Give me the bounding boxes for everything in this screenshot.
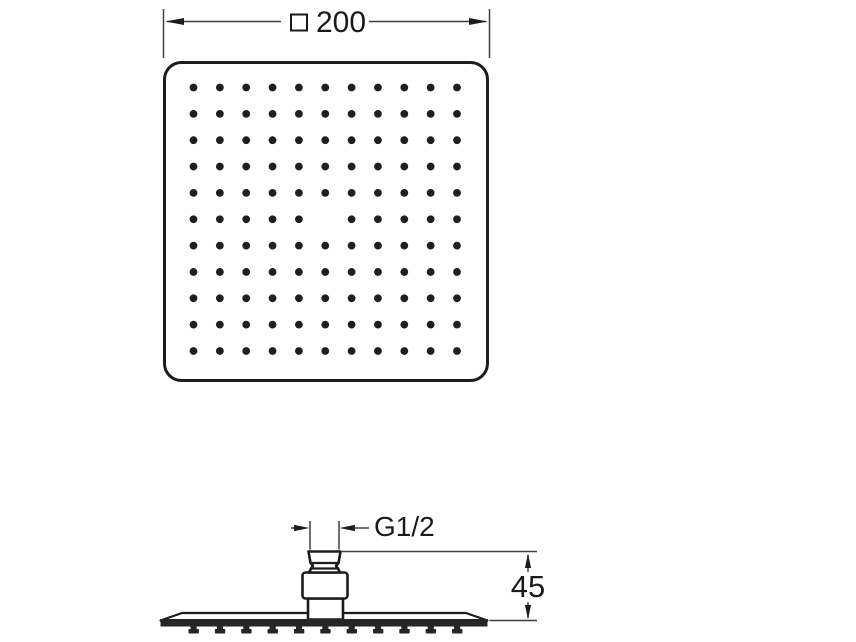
spray-hole — [321, 110, 329, 118]
spray-hole — [295, 110, 303, 118]
spray-hole — [348, 163, 356, 171]
spray-hole — [374, 110, 382, 118]
spray-hole — [321, 347, 329, 355]
spray-hole — [348, 321, 356, 329]
nozzle — [399, 626, 409, 634]
spray-hole — [400, 347, 408, 355]
spray-hole — [216, 347, 224, 355]
spray-hole — [348, 242, 356, 250]
spray-hole — [453, 321, 461, 329]
spray-hole — [321, 321, 329, 329]
technical-drawing: 200 G1/2 45 — [0, 0, 856, 642]
spray-hole — [400, 215, 408, 223]
spray-hole — [400, 163, 408, 171]
spray-hole — [374, 321, 382, 329]
spray-hole — [269, 84, 277, 92]
nozzle — [215, 626, 225, 634]
spray-hole — [348, 84, 356, 92]
spray-hole — [216, 268, 224, 276]
spray-hole — [427, 110, 435, 118]
spray-hole — [374, 84, 382, 92]
spray-hole — [242, 215, 250, 223]
spray-hole — [348, 215, 356, 223]
spray-hole — [427, 163, 435, 171]
spray-hole — [453, 215, 461, 223]
arrow-up-icon — [525, 554, 531, 569]
spray-hole — [190, 84, 198, 92]
spray-hole — [400, 84, 408, 92]
nozzle — [426, 626, 436, 634]
nozzle — [268, 626, 278, 634]
arrow-left-pointing-icon — [340, 525, 356, 531]
width-dimension: 200 — [164, 6, 490, 58]
spray-hole — [190, 294, 198, 302]
spray-hole — [348, 110, 356, 118]
spray-hole — [321, 163, 329, 171]
spray-hole — [374, 242, 382, 250]
spray-hole — [374, 189, 382, 197]
spray-hole — [295, 268, 303, 276]
spray-hole — [453, 294, 461, 302]
nozzle — [189, 626, 199, 634]
nozzle — [347, 626, 357, 634]
spray-hole — [348, 347, 356, 355]
spray-hole — [453, 347, 461, 355]
nozzle — [320, 626, 330, 634]
spray-hole — [374, 347, 382, 355]
spray-hole — [216, 163, 224, 171]
spray-hole — [374, 215, 382, 223]
spray-hole — [269, 242, 277, 250]
spray-hole — [427, 321, 435, 329]
spray-hole — [321, 136, 329, 144]
spray-hole — [374, 163, 382, 171]
spray-hole — [190, 136, 198, 144]
spray-hole — [321, 189, 329, 197]
arrow-down-icon — [525, 605, 531, 619]
spray-hole — [216, 189, 224, 197]
spray-hole — [295, 136, 303, 144]
spray-hole — [427, 136, 435, 144]
spray-hole — [295, 84, 303, 92]
spray-hole — [190, 347, 198, 355]
arrow-left-icon — [166, 18, 185, 25]
spray-hole — [190, 268, 198, 276]
spray-hole — [269, 347, 277, 355]
spray-hole — [400, 136, 408, 144]
spray-hole — [269, 136, 277, 144]
spray-hole — [242, 110, 250, 118]
thread-dimension: G1/2 — [291, 511, 435, 550]
connector-stem — [308, 599, 343, 620]
spray-hole — [242, 321, 250, 329]
spray-hole — [348, 136, 356, 144]
spray-hole — [348, 294, 356, 302]
spray-hole — [453, 136, 461, 144]
spray-hole — [269, 294, 277, 302]
nozzle — [294, 626, 304, 634]
spray-hole — [427, 84, 435, 92]
spray-hole — [453, 110, 461, 118]
spray-hole — [269, 268, 277, 276]
spray-hole — [427, 347, 435, 355]
spray-hole — [400, 294, 408, 302]
spray-hole — [295, 189, 303, 197]
spray-hole — [242, 347, 250, 355]
spray-hole — [348, 268, 356, 276]
spray-hole — [295, 163, 303, 171]
spray-hole — [427, 294, 435, 302]
spray-hole — [269, 163, 277, 171]
spray-hole — [269, 215, 277, 223]
spray-hole — [216, 110, 224, 118]
spray-hole — [216, 294, 224, 302]
spray-hole — [321, 294, 329, 302]
spray-hole — [242, 189, 250, 197]
spray-hole — [427, 268, 435, 276]
spray-hole — [295, 242, 303, 250]
spray-hole — [400, 110, 408, 118]
spray-hole — [374, 136, 382, 144]
spray-hole — [190, 110, 198, 118]
spray-hole — [190, 321, 198, 329]
spray-hole — [321, 242, 329, 250]
arrow-right-pointing-icon — [294, 525, 310, 531]
spray-hole — [374, 294, 382, 302]
connector-body — [303, 573, 348, 599]
nozzle-row — [189, 626, 463, 634]
spray-hole — [242, 136, 250, 144]
spray-hole — [348, 189, 356, 197]
height-dimension: 45 — [341, 552, 545, 621]
spray-hole — [190, 189, 198, 197]
nozzle — [241, 626, 251, 634]
spray-hole — [321, 268, 329, 276]
spray-hole — [242, 84, 250, 92]
spray-hole — [453, 163, 461, 171]
spray-hole — [216, 136, 224, 144]
spray-hole — [427, 242, 435, 250]
spray-hole — [242, 294, 250, 302]
spray-hole — [295, 347, 303, 355]
spray-hole — [190, 242, 198, 250]
thread-dimension-label: G1/2 — [374, 511, 435, 542]
spray-hole — [269, 321, 277, 329]
shower-plate-band — [161, 619, 488, 627]
spray-hole — [453, 242, 461, 250]
height-dimension-value: 45 — [511, 569, 545, 604]
face-view — [165, 63, 488, 381]
width-dimension-value: 200 — [316, 6, 366, 39]
square-symbol-icon — [291, 15, 307, 31]
spray-hole — [190, 215, 198, 223]
spray-hole — [269, 189, 277, 197]
spray-hole — [242, 163, 250, 171]
spray-hole — [453, 84, 461, 92]
spray-hole — [190, 163, 198, 171]
spray-hole — [269, 110, 277, 118]
spray-hole — [453, 268, 461, 276]
spray-hole — [427, 215, 435, 223]
spray-hole — [242, 242, 250, 250]
arrow-right-icon — [469, 18, 488, 25]
spray-hole — [295, 215, 303, 223]
spray-hole — [400, 321, 408, 329]
spray-hole — [427, 189, 435, 197]
spray-hole — [400, 268, 408, 276]
nozzle — [373, 626, 383, 634]
spray-hole — [321, 84, 329, 92]
spray-hole — [216, 242, 224, 250]
spray-hole — [400, 242, 408, 250]
spray-hole — [453, 189, 461, 197]
spray-hole — [295, 321, 303, 329]
spray-hole — [374, 268, 382, 276]
spray-hole — [295, 294, 303, 302]
spray-hole — [216, 84, 224, 92]
spray-hole — [400, 189, 408, 197]
spray-hole — [216, 215, 224, 223]
spray-hole — [242, 268, 250, 276]
nozzle — [452, 626, 462, 634]
spray-hole — [216, 321, 224, 329]
side-view — [161, 552, 488, 634]
